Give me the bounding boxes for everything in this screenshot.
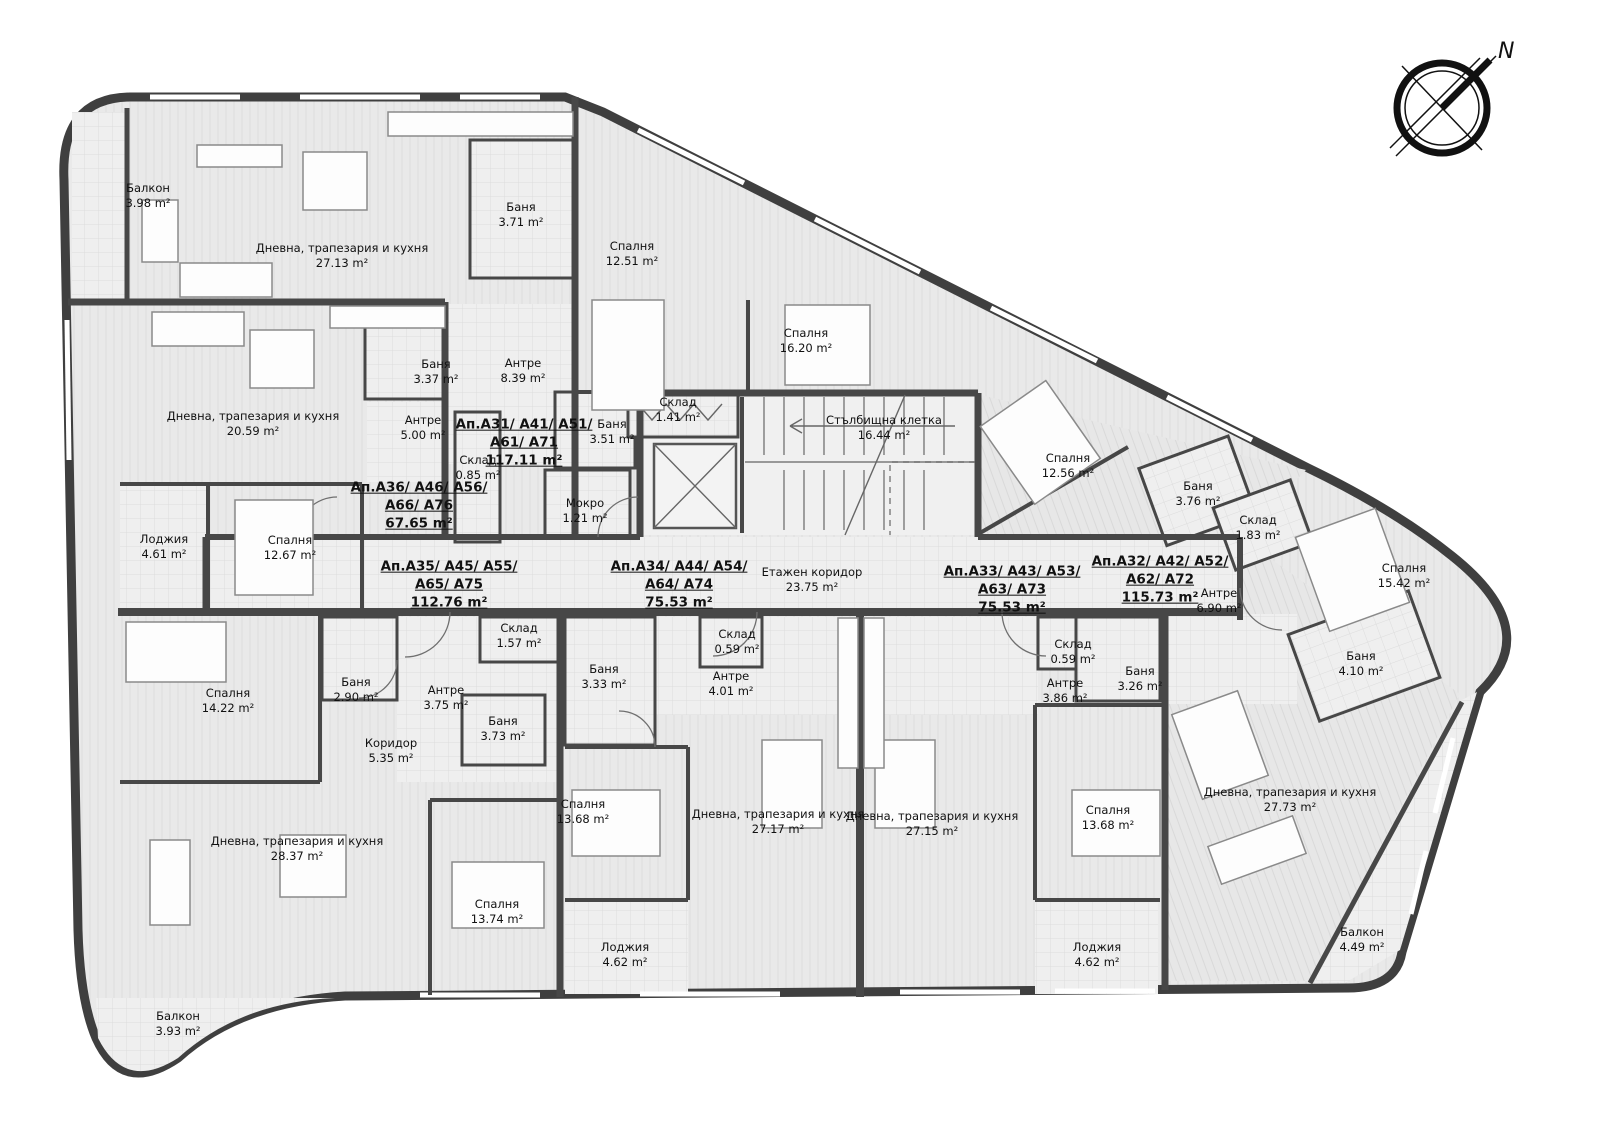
floor-plan-canvas: N <box>0 0 1600 1143</box>
floor-plan: N Балкон3.98 m²Дневна, трапезария и кухн… <box>0 0 1600 1143</box>
compass-north-label: N <box>1498 39 1514 64</box>
compass-icon: N <box>1390 39 1514 156</box>
elevator <box>654 444 736 528</box>
